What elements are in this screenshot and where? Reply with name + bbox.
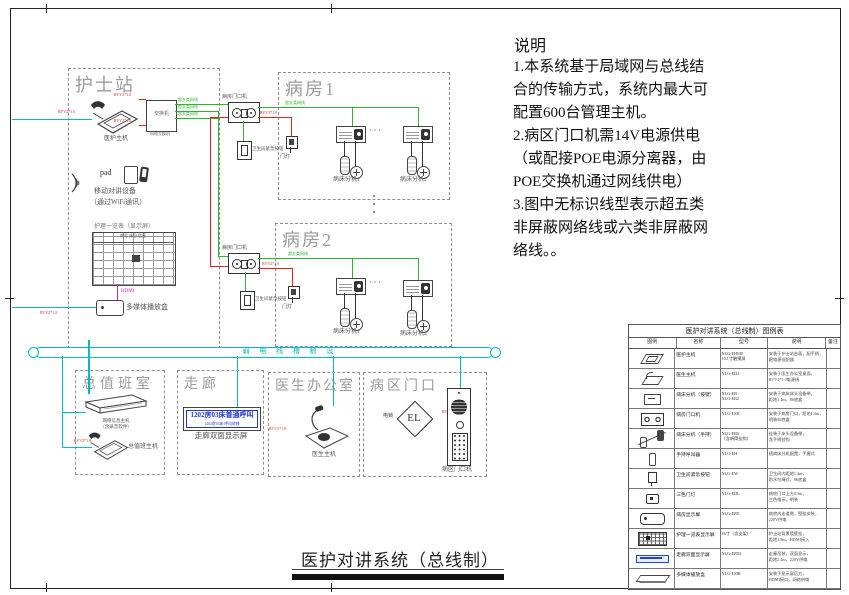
bed-extension-label: 病床分机2 (400, 177, 427, 184)
ellipsis: · · · (369, 127, 381, 136)
tablet-icon (124, 166, 138, 184)
legend-table: 医护对讲系统（总线制）图例表 图例 名称 型号 说明 备注 医护主机 NLG-E… (628, 324, 841, 590)
legend-desc: 安装于显示屏后方， HDMI接口，网络供电 (768, 569, 827, 588)
legend-desc: 安装于护士站台面，配手柄， 配电源适配器 (768, 349, 827, 368)
bed-extension-unit (336, 278, 366, 295)
cord-line (344, 293, 345, 309)
legend-name: 三色门灯 (675, 489, 720, 508)
cable-label: RVV2*1.0 (58, 110, 75, 114)
net-line (352, 107, 353, 126)
net-line (418, 258, 419, 280)
legend-remark (827, 429, 840, 448)
corridor-display: 1202房03床普通呼叫 1202房03床 呼叫转移 (183, 407, 261, 431)
toilet-call-button (240, 291, 255, 310)
legend-remark (827, 589, 840, 590)
cable-label: 超五类网线 (285, 101, 305, 105)
board-header-line (93, 242, 173, 243)
legend-desc: 走廊吊装，双面显示， 距地2.4m，220V供电 (768, 549, 827, 568)
legend-name: 医生主机 (675, 369, 720, 388)
pad-label: pad (100, 169, 112, 178)
legend-name: 病房门口机 (675, 409, 720, 428)
frame-tick (46, 4, 47, 13)
frame-tick (5, 298, 14, 299)
cable-label: 超五类网线 (178, 105, 198, 109)
display-icon (634, 511, 670, 526)
legend-model: NLG-EH (721, 449, 768, 468)
bed-extension-label: 病床分机1 (333, 177, 360, 184)
legend-model: NLG-EDL (721, 489, 768, 508)
drawing-title: 医护对讲系统（总线制） (280, 546, 520, 571)
frame-tick (46, 583, 47, 592)
rack-icon (634, 571, 670, 586)
net-line (175, 118, 218, 119)
toilet-call-button (237, 141, 252, 160)
corridor-display-label: 走廊双面显示屏 (184, 432, 258, 440)
handset-icon (407, 156, 417, 175)
legend-desc: 安装于病房门口，距地1.4m， 明装86底盒 (768, 409, 827, 428)
legend-desc: 随病床分机配置，手握式 (768, 449, 827, 468)
legend-remark (827, 409, 840, 428)
legend-remark (827, 549, 840, 568)
bed-extension-label: 病床分机1 (333, 329, 360, 336)
media-player-device (96, 300, 124, 316)
trunk-end-icon (28, 347, 39, 358)
legend-row: 医护主机 NLG-EHM8 10.1寸触摸屏 安装于护士站台面，配手柄， 配电源… (629, 349, 840, 369)
doctor-icon (634, 371, 670, 386)
cable-label: RVV2*1.0 (114, 119, 131, 123)
legend-name: 走廊双面显示屏 (675, 549, 720, 568)
keypad-icon (452, 433, 468, 461)
drawing-canvas: 护士站 病房1 病房2 总值班室 走廊 医生办公室 病区门口 RVV2*1.0 … (0, 0, 849, 595)
power-line (210, 117, 228, 118)
info-server-rack (84, 392, 148, 418)
net-line (218, 111, 219, 256)
trunk-end-icon (490, 347, 501, 358)
legend-model: NLG-EMB (721, 569, 768, 588)
legend-row: 病床分机（按键） NLG-EB NLG-EB2 安装于病床床头设备带， 距地1.… (629, 389, 840, 409)
cable-label: RVV2*1.0 (114, 93, 131, 97)
legend-model: NLG-ED2 (721, 369, 768, 388)
power-line (210, 117, 211, 266)
duty-host-label: 总值班主机 (128, 444, 158, 451)
legend-model: NLG-EPD2 (721, 549, 768, 568)
legend-header: 图例 (629, 338, 677, 348)
call-button-icon (456, 421, 464, 429)
legend-model: NLG-EW (721, 469, 768, 488)
cord-line (422, 295, 423, 321)
legend-name: 护理一览表显示屏 (675, 529, 720, 548)
legend-header: 备注 (826, 338, 840, 348)
cable-label: 超五类网线 (288, 252, 308, 256)
cord-line (344, 141, 345, 157)
room-title-doctor: 医生办公室 (275, 375, 355, 395)
legend-remark (827, 389, 840, 408)
notes-title: 说明 (514, 32, 546, 56)
title-bar (292, 574, 504, 580)
ellipsis-dot (373, 195, 375, 197)
signal-line (237, 356, 238, 407)
hdmi-line (117, 284, 118, 300)
lamp-stem (290, 147, 291, 153)
legend-remark (827, 569, 840, 588)
display-line-2: 1202房03床 呼叫转移 (184, 422, 260, 426)
entrance-station-label: 病区门口机 (442, 467, 472, 474)
frame-tick (331, 4, 332, 13)
lamp-icon (634, 491, 670, 506)
media-player-label: 多媒体播放盒 (126, 304, 168, 312)
nursing-board-display: 房号 床位 信息 (92, 232, 176, 286)
cord-line (422, 141, 423, 167)
handset-icon (340, 308, 350, 327)
corridorbar-icon (634, 551, 670, 566)
frame-tick (835, 298, 844, 299)
ellipsis-dot (373, 211, 375, 213)
cord-line (355, 141, 356, 167)
cable-label: RVV2*1.0 (269, 427, 286, 431)
bed-extension-group (403, 126, 433, 178)
signal-line (12, 307, 96, 308)
power-line (210, 266, 228, 267)
legend-name: 多媒体播放盒 (675, 569, 720, 588)
legend-model: 46寸（含支架） (721, 529, 768, 548)
room-title-duty: 总值班室 (82, 373, 154, 393)
legend-desc: 病房内走道侧，壁挂安装， 220V供电 (768, 509, 827, 528)
handsets-icon (634, 431, 670, 446)
power-line (292, 268, 293, 286)
hdmi-label: HDMI (121, 289, 134, 295)
power-line (291, 117, 292, 136)
room-title-entrance: 病区门口 (370, 375, 438, 395)
toilet-button-label: 卫生间紧急按钮 (255, 297, 287, 302)
net-line (258, 258, 418, 259)
signal-line (333, 356, 334, 406)
lamp-stem (292, 297, 293, 303)
wifi-note-2: （通过WiFi通讯） (90, 199, 146, 207)
power-line (258, 268, 293, 269)
legend-row: 病房门口机 NLG-EMC 安装于病房门口，距地1.4m， 明装86底盒 (629, 409, 840, 429)
legend-remark (827, 349, 840, 368)
legend-desc: 卫生间内距地1.4m， 防水拉绳式，86底盒 (768, 469, 827, 488)
signal-line (88, 340, 90, 394)
power-line (258, 117, 292, 118)
board-active-cell (132, 255, 140, 262)
legend-model: NLG-EPD (721, 509, 768, 528)
legend-header-row: 图例 名称 型号 说明 备注 (629, 338, 840, 349)
doctor-host-label: 医生主机 (312, 452, 336, 459)
legend-row: 三色门灯 NLG-EDL 病房门口上方0.3m， 三色指示，明装 (629, 489, 840, 509)
legend-model: NLG-EB NLG-EB2 (721, 389, 768, 408)
legend-row: 病房显示屏 NLG-EPD 病房内走道侧，壁挂安装， 220V供电 (629, 509, 840, 529)
frame-tick (331, 583, 332, 592)
cable-label: RVV2*1.0 (74, 439, 91, 443)
net-line (245, 272, 246, 291)
bed-extension-unit (403, 126, 433, 143)
cable-label: RVV2*1.0 (262, 262, 279, 266)
door-unit-label: 病房门口机 (222, 246, 247, 252)
legend-desc: 病房门口上方0.3m， 三色指示，明装 (768, 489, 827, 508)
board-title: 护理一览表（显示屏） (94, 224, 154, 231)
legend-header: 名称 (677, 338, 722, 348)
doctor-host-device (296, 404, 352, 450)
legend-remark (827, 489, 840, 508)
legend-title: 医护对讲系统（总线制）图例表 (629, 325, 840, 338)
handset-icon (634, 451, 670, 466)
net-line (243, 121, 244, 141)
duty-host-device (88, 428, 130, 462)
room-title-ward1: 病房1 (285, 75, 336, 101)
board-icon (634, 531, 670, 546)
cable-label: 超五类网线 (178, 112, 198, 116)
net-line (258, 107, 418, 108)
button-icon (241, 260, 248, 269)
legend-name: 手持呼叫器 (675, 449, 720, 468)
door-lamp (286, 136, 298, 149)
net-line (418, 107, 419, 126)
door-unit-label: 病房门口机 (222, 95, 247, 101)
legend-model: NLG-EMD、EL-280 (721, 589, 768, 590)
toilet-icon (634, 471, 670, 486)
doorunit-icon (634, 411, 670, 426)
wifi-note-1: 移动对讲设备 (94, 188, 136, 196)
legend-name: 病房显示屏 (675, 509, 720, 528)
legend-name: 卫生间紧急按钮 (675, 469, 720, 488)
cord-line (411, 141, 412, 157)
legend-name: 病区门口机＋电锁 (675, 589, 720, 590)
ellipsis: · · · (369, 279, 381, 288)
legend-remark (827, 449, 840, 468)
signal-line (62, 356, 63, 448)
switch-text: 交换机 (147, 112, 176, 118)
network-switch-device: 交换机 (146, 100, 177, 132)
legend-desc: 护士站背景墙壁挂， 距地1.8m，HDMI接入 (768, 529, 827, 548)
signal-line (460, 356, 461, 390)
legend-row: 多媒体播放盒 NLG-EMB 安装于显示屏后方， HDMI接口，网络供电 (629, 569, 840, 589)
button-icon (241, 109, 248, 118)
nurse-host-device (90, 96, 140, 136)
legend-name: 病床分机（手持） (675, 429, 720, 448)
legend-desc: 安装于病床床头设备带， 距地1.4m，86底盒 (768, 389, 827, 408)
legend-desc: 病区入口距地1.4m， 配电控锁14V供电 (768, 589, 827, 590)
cord-line (355, 293, 356, 319)
ellipsis-dot (373, 203, 375, 205)
handset-icon (407, 310, 417, 329)
title-underline (292, 569, 504, 570)
legend-remark (827, 469, 840, 488)
toilet-button-label: 卫生间紧急按钮 (252, 147, 284, 152)
camera-icon (458, 392, 460, 394)
wifi-icon (66, 166, 90, 198)
bed-extension-group (403, 280, 433, 332)
legend-row: 护理一览表显示屏 46寸（含支架） 护士站背景墙壁挂， 距地1.8m，HDMI接… (629, 529, 840, 549)
handset-icon (340, 156, 350, 175)
signal-line (62, 412, 86, 413)
legend-remark (827, 529, 840, 548)
legend-remark (827, 369, 840, 388)
bed-extension-unit (403, 280, 433, 297)
door-lamp-label: 门灯 (282, 305, 292, 311)
door-lamp (288, 286, 300, 299)
net-line (352, 258, 353, 278)
speaker-icon (451, 399, 467, 415)
legend-model: NLG-EHM8 10.1寸触摸屏 (721, 349, 768, 368)
display-line-1: 1202房03床普通呼叫 (184, 412, 260, 420)
cable-label: 超五类网线 (178, 98, 198, 102)
legend-desc: 安装于医生办公室桌面， RVV2*1.0电源线 (768, 369, 827, 388)
bedbtn-icon (634, 391, 670, 406)
legend-header: 型号 (721, 338, 768, 348)
legend-model: NLG-EMC (721, 409, 768, 428)
signal-line (12, 119, 92, 120)
legend-remark (827, 509, 840, 528)
trunk-label: 弱 电 线 槽 敷 设 (210, 348, 370, 356)
bed-extension-group (336, 278, 366, 330)
switch-label: 网络交换机 (140, 132, 180, 136)
legend-model: NLG-EBS （含听筒挂钩） (721, 429, 768, 448)
legend-header: 说明 (768, 338, 826, 348)
door-lamp-label: 门灯 (280, 155, 290, 161)
legend-row: 走廊双面显示屏 NLG-EPD2 走廊吊装，双面显示， 距地2.4m，220V供… (629, 549, 840, 569)
nurse-host-label: 医护主机 (92, 136, 140, 143)
legend-desc: 挂装于床头设备带， 含手柄挂钩 (768, 429, 827, 448)
legend-row: 手持呼叫器 NLG-EH 随病床分机配置，手握式 (629, 449, 840, 469)
legend-row: 医生主机 NLG-ED2 安装于医生办公室桌面， RVV2*1.0电源线 (629, 369, 840, 389)
power-line (139, 99, 146, 100)
room-title-corridor: 走廊 (184, 373, 220, 393)
ward-door-unit (228, 253, 260, 274)
notes-body: 1.本系统基于局域网与总线结 合的传输方式，系统内最大可 配置600台管理主机。… (513, 56, 789, 263)
legend-name: 医护主机 (675, 349, 720, 368)
legend-name: 病床分机（按键） (675, 389, 720, 408)
bed-extension-group (336, 126, 366, 178)
cable-label: RVV2*1.0 (40, 311, 57, 315)
bed-extension-unit (336, 126, 366, 143)
entrance-door-station (447, 388, 471, 466)
net-line (218, 256, 228, 257)
legend-row: 病床分机（手持） NLG-EBS （含听筒挂钩） 挂装于床头设备带， 含手柄挂钩 (629, 429, 840, 449)
cable-label: RVV2*1.0 (260, 111, 277, 115)
legend-row: 病区门口机＋电锁 NLG-EMD、EL-280 病区入口距地1.4m， 配电控锁… (629, 589, 840, 590)
room-title-ward2: 病房2 (282, 226, 333, 252)
cord-line (411, 295, 412, 311)
bed-extension-label: 病床分机2 (400, 331, 427, 338)
power-line (139, 125, 146, 126)
legend-row: 卫生间紧急按钮 NLG-EW 卫生间内距地1.4m， 防水拉绳式，86底盒 (629, 469, 840, 489)
lock-label: 电锁 (383, 414, 393, 420)
electric-lock-text: EL (402, 412, 426, 424)
ward-door-unit (228, 102, 260, 123)
host-icon (634, 351, 670, 366)
board-header: 房号 床位 信息 (93, 234, 173, 238)
